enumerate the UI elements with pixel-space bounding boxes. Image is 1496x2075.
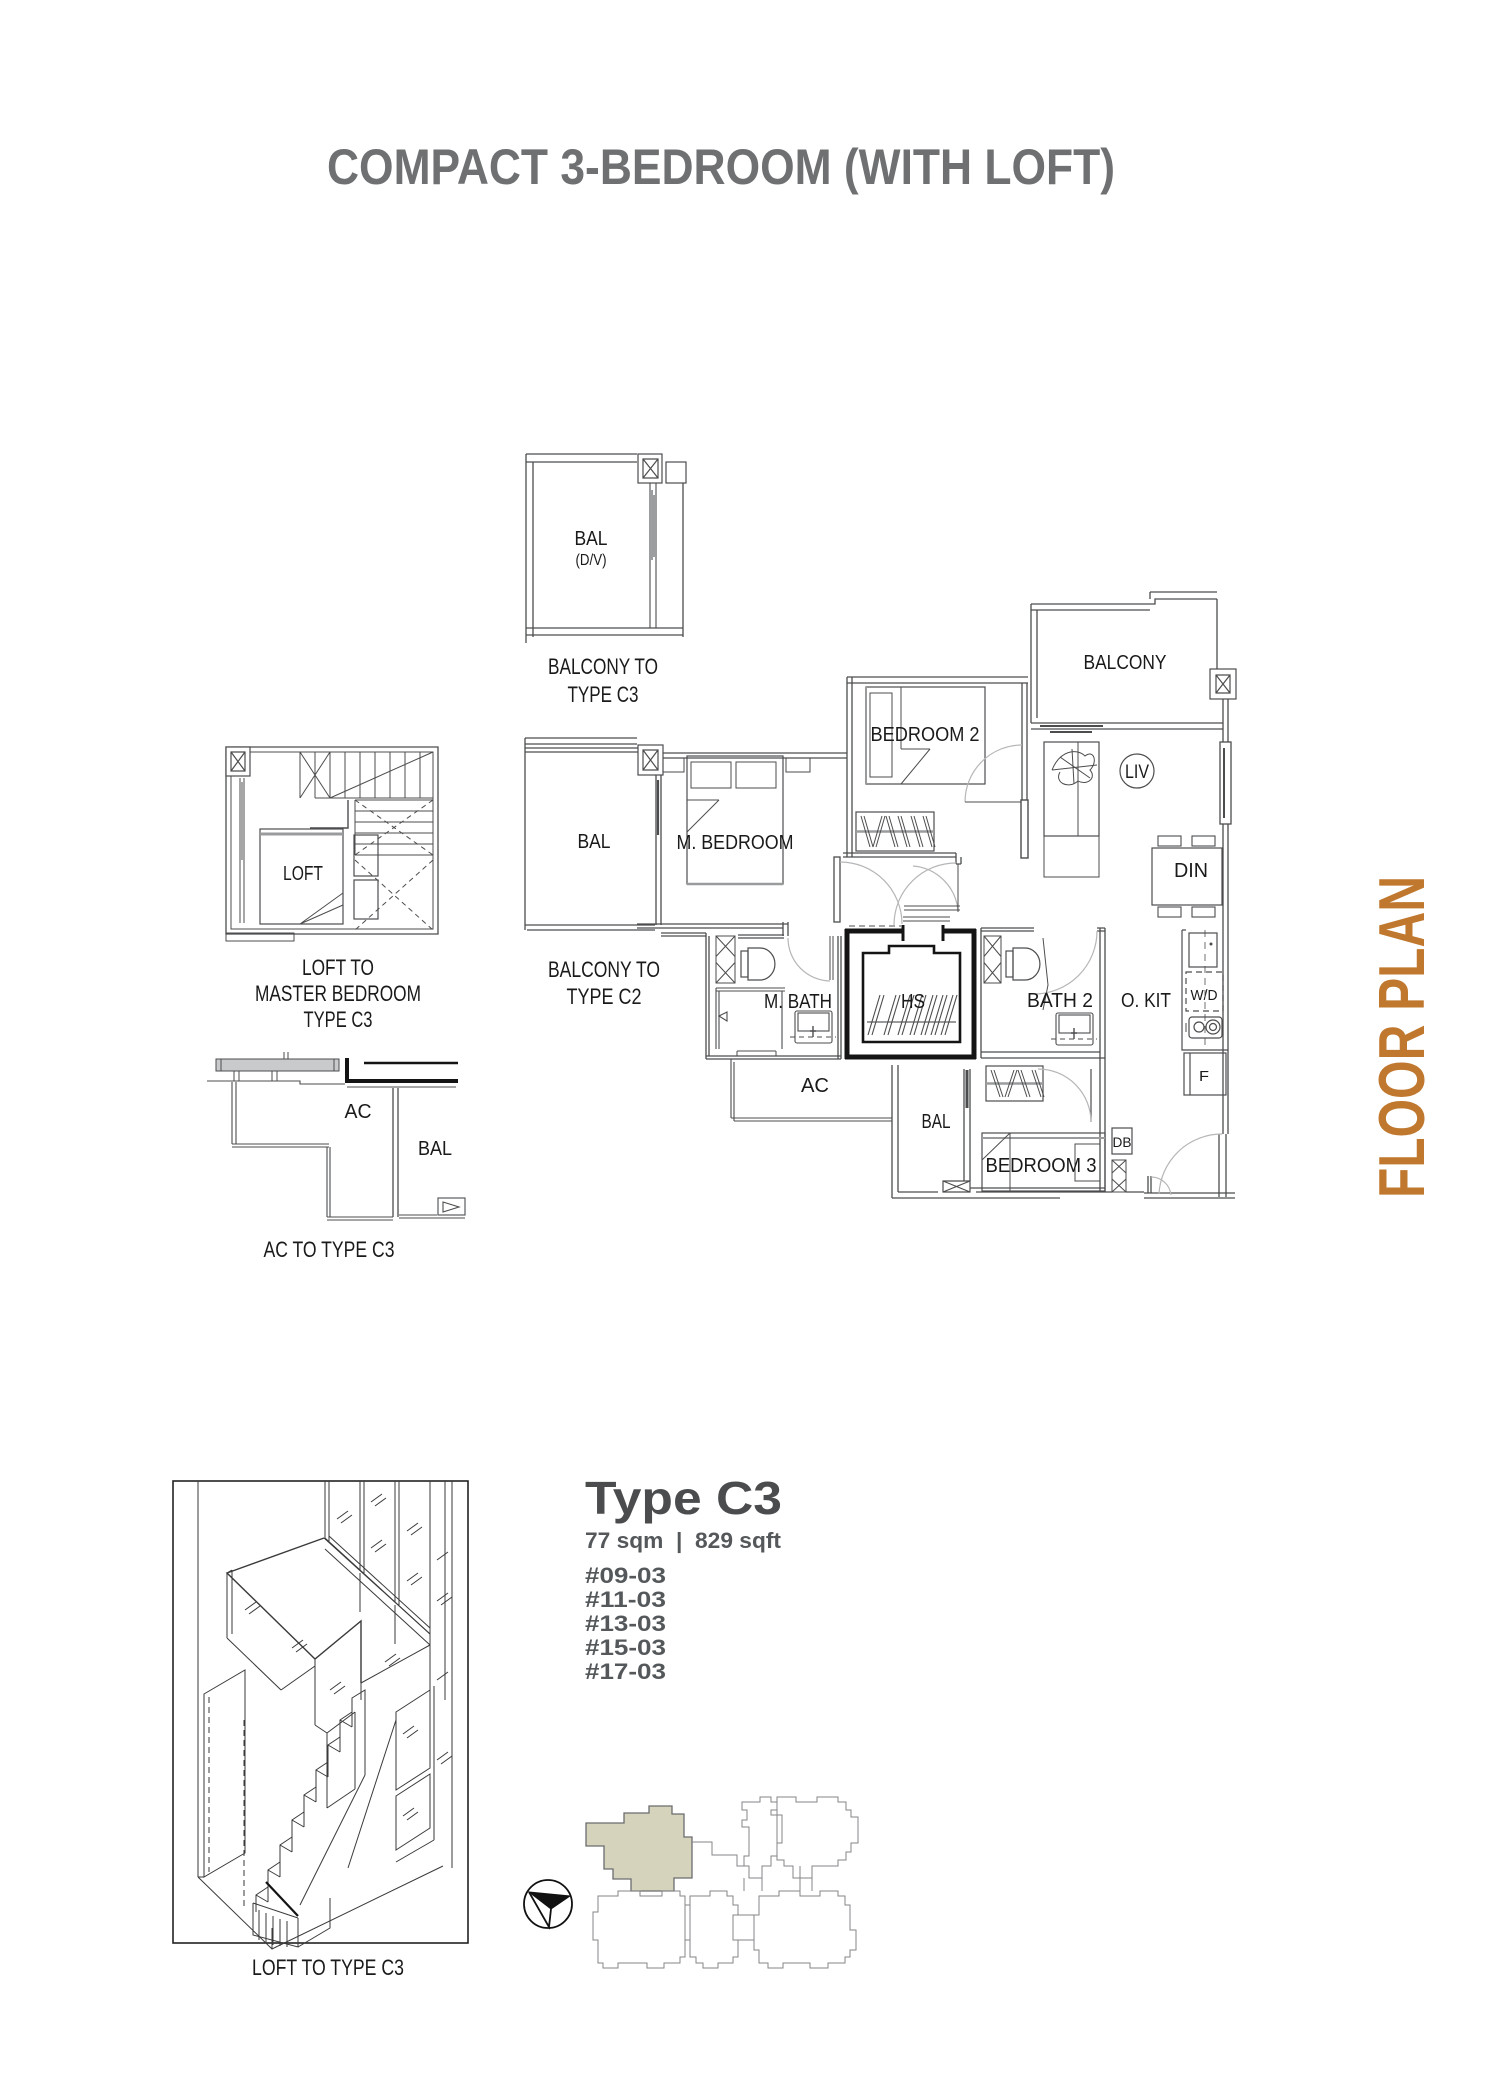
svg-text:Type C3: Type C3 (585, 1472, 782, 1524)
svg-text:(D/V): (D/V) (576, 552, 607, 569)
svg-text:AC: AC (801, 1075, 829, 1097)
svg-text:DIN: DIN (1174, 860, 1208, 882)
svg-text:BATH 2: BATH 2 (1027, 990, 1093, 1012)
svg-text:TYPE C3: TYPE C3 (568, 682, 639, 707)
svg-text:MASTER BEDROOM: MASTER BEDROOM (255, 981, 421, 1006)
svg-text:O. KIT: O. KIT (1121, 990, 1171, 1012)
svg-text:COMPACT 3-BEDROOM (WITH LOFT): COMPACT 3-BEDROOM (WITH LOFT) (327, 139, 1115, 195)
svg-text:#09-03: #09-03 (585, 1563, 666, 1588)
svg-text:M. BATH: M. BATH (764, 991, 832, 1013)
svg-text:BAL: BAL (578, 831, 611, 853)
svg-text:BAL: BAL (575, 528, 608, 550)
svg-text:BEDROOM 2: BEDROOM 2 (871, 724, 980, 746)
svg-text:W/D: W/D (1191, 987, 1218, 1004)
svg-text:HS: HS (901, 991, 925, 1013)
svg-text:#11-03: #11-03 (585, 1587, 666, 1612)
svg-text:BALCONY TO: BALCONY TO (548, 654, 658, 679)
svg-text:F: F (1199, 1068, 1209, 1085)
svg-text:#13-03: #13-03 (585, 1611, 666, 1636)
svg-text:FLOOR PLAN: FLOOR PLAN (1365, 876, 1438, 1198)
svg-text:BAL: BAL (922, 1111, 951, 1133)
svg-text:BALCONY TO: BALCONY TO (548, 957, 660, 982)
svg-text:BALCONY: BALCONY (1084, 652, 1167, 674)
svg-text:LOFT TO: LOFT TO (302, 955, 374, 980)
svg-text:LOFT TO TYPE C3: LOFT TO TYPE C3 (252, 1955, 404, 1980)
svg-text:AC: AC (345, 1101, 372, 1123)
svg-text:TYPE C2: TYPE C2 (567, 984, 642, 1009)
svg-text:#15-03: #15-03 (585, 1635, 666, 1660)
svg-text:DB: DB (1113, 1134, 1132, 1150)
svg-text:77 sqm | 829 sqft: 77 sqm | 829 sqft (585, 1528, 782, 1553)
svg-text:AC TO TYPE C3: AC TO TYPE C3 (264, 1237, 395, 1262)
svg-text:LOFT: LOFT (283, 863, 323, 885)
svg-text:BAL: BAL (418, 1138, 452, 1160)
svg-text:M. BEDROOM: M. BEDROOM (677, 832, 794, 854)
svg-text:#17-03: #17-03 (585, 1659, 666, 1684)
svg-text:LIV: LIV (1125, 762, 1149, 783)
svg-text:TYPE C3: TYPE C3 (304, 1007, 373, 1032)
svg-text:BEDROOM 3: BEDROOM 3 (986, 1155, 1097, 1177)
